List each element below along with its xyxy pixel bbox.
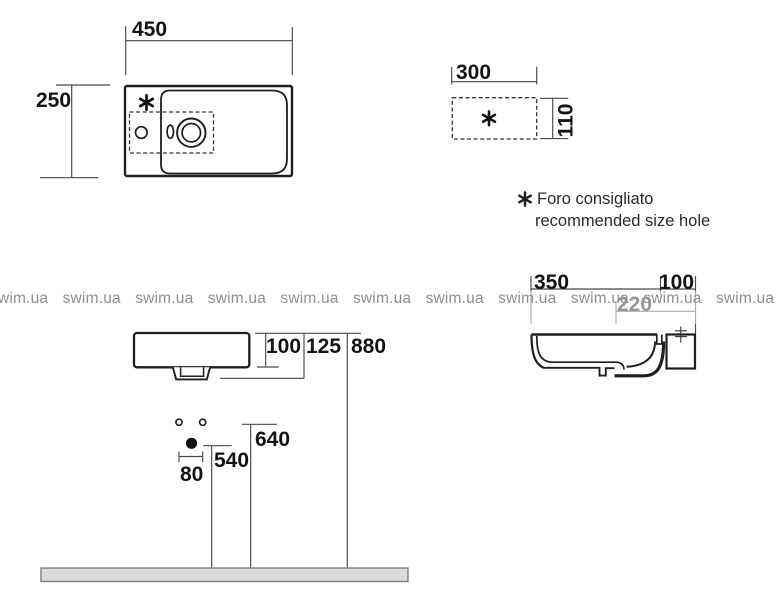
watermark: swim.ua: [571, 290, 644, 307]
dim-front-holes-spacing: 80: [180, 464, 203, 485]
watermark: swim.ua: [426, 290, 499, 307]
watermark: swim.ua: [716, 290, 781, 307]
watermark-row: swim.ua swim.ua swim.ua swim.ua swim.ua …: [0, 290, 781, 307]
dim-top-view-width: 450: [132, 19, 167, 40]
watermark: swim.ua: [208, 290, 281, 307]
dim-front-drain-height: 125: [306, 336, 341, 357]
technical-drawing-canvas: 450 250 300 110 350 100 220 100 125 880 …: [0, 0, 781, 600]
dim-top-view-depth: 250: [36, 90, 71, 111]
legend-line2: recommended size hole: [535, 213, 710, 230]
watermark: swim.ua: [353, 290, 426, 307]
legend-asterisk-icon: [519, 192, 530, 205]
dim-front-holes-height: 640: [255, 429, 290, 450]
watermark: swim.ua: [135, 290, 208, 307]
watermark: swim.ua: [280, 290, 353, 307]
dim-hole-width: 300: [456, 62, 491, 83]
asterisk-icon: [483, 112, 495, 126]
legend-line1: Foro consigliato: [537, 191, 653, 208]
dim-hole-height: 110: [555, 99, 576, 143]
dim-front-outlet-height: 540: [214, 450, 249, 471]
floor-line: [41, 568, 408, 582]
dim-front-total-height: 880: [351, 336, 386, 357]
dim-front-rim-height: 100: [266, 336, 301, 357]
side-view: [532, 327, 696, 376]
watermark: swim.ua: [643, 290, 716, 307]
front-view: [134, 333, 249, 449]
watermark: swim.ua: [0, 290, 63, 307]
watermark: swim.ua: [498, 290, 571, 307]
watermark: swim.ua: [63, 290, 136, 307]
